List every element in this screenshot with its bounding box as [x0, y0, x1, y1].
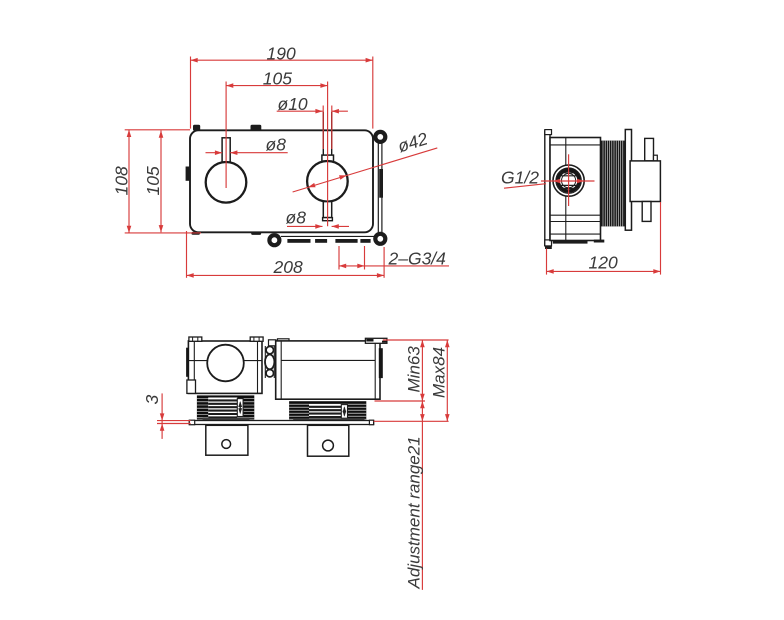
svg-text:208: 208 [273, 257, 303, 277]
svg-text:190: 190 [267, 44, 296, 64]
svg-text:3: 3 [142, 395, 162, 405]
svg-text:ø8: ø8 [286, 208, 307, 228]
svg-text:105: 105 [263, 69, 292, 89]
svg-text:120: 120 [589, 253, 618, 273]
svg-text:ø8: ø8 [266, 134, 287, 154]
svg-text:Min63: Min63 [405, 346, 424, 393]
svg-text:2–G3/4: 2–G3/4 [388, 249, 447, 269]
svg-text:105: 105 [143, 166, 163, 195]
svg-text:Max84: Max84 [430, 347, 449, 398]
svg-text:G1/2: G1/2 [501, 168, 539, 188]
svg-text:ø10: ø10 [278, 94, 308, 114]
svg-text:Adjustment range21: Adjustment range21 [405, 436, 424, 589]
svg-text:108: 108 [111, 166, 131, 195]
